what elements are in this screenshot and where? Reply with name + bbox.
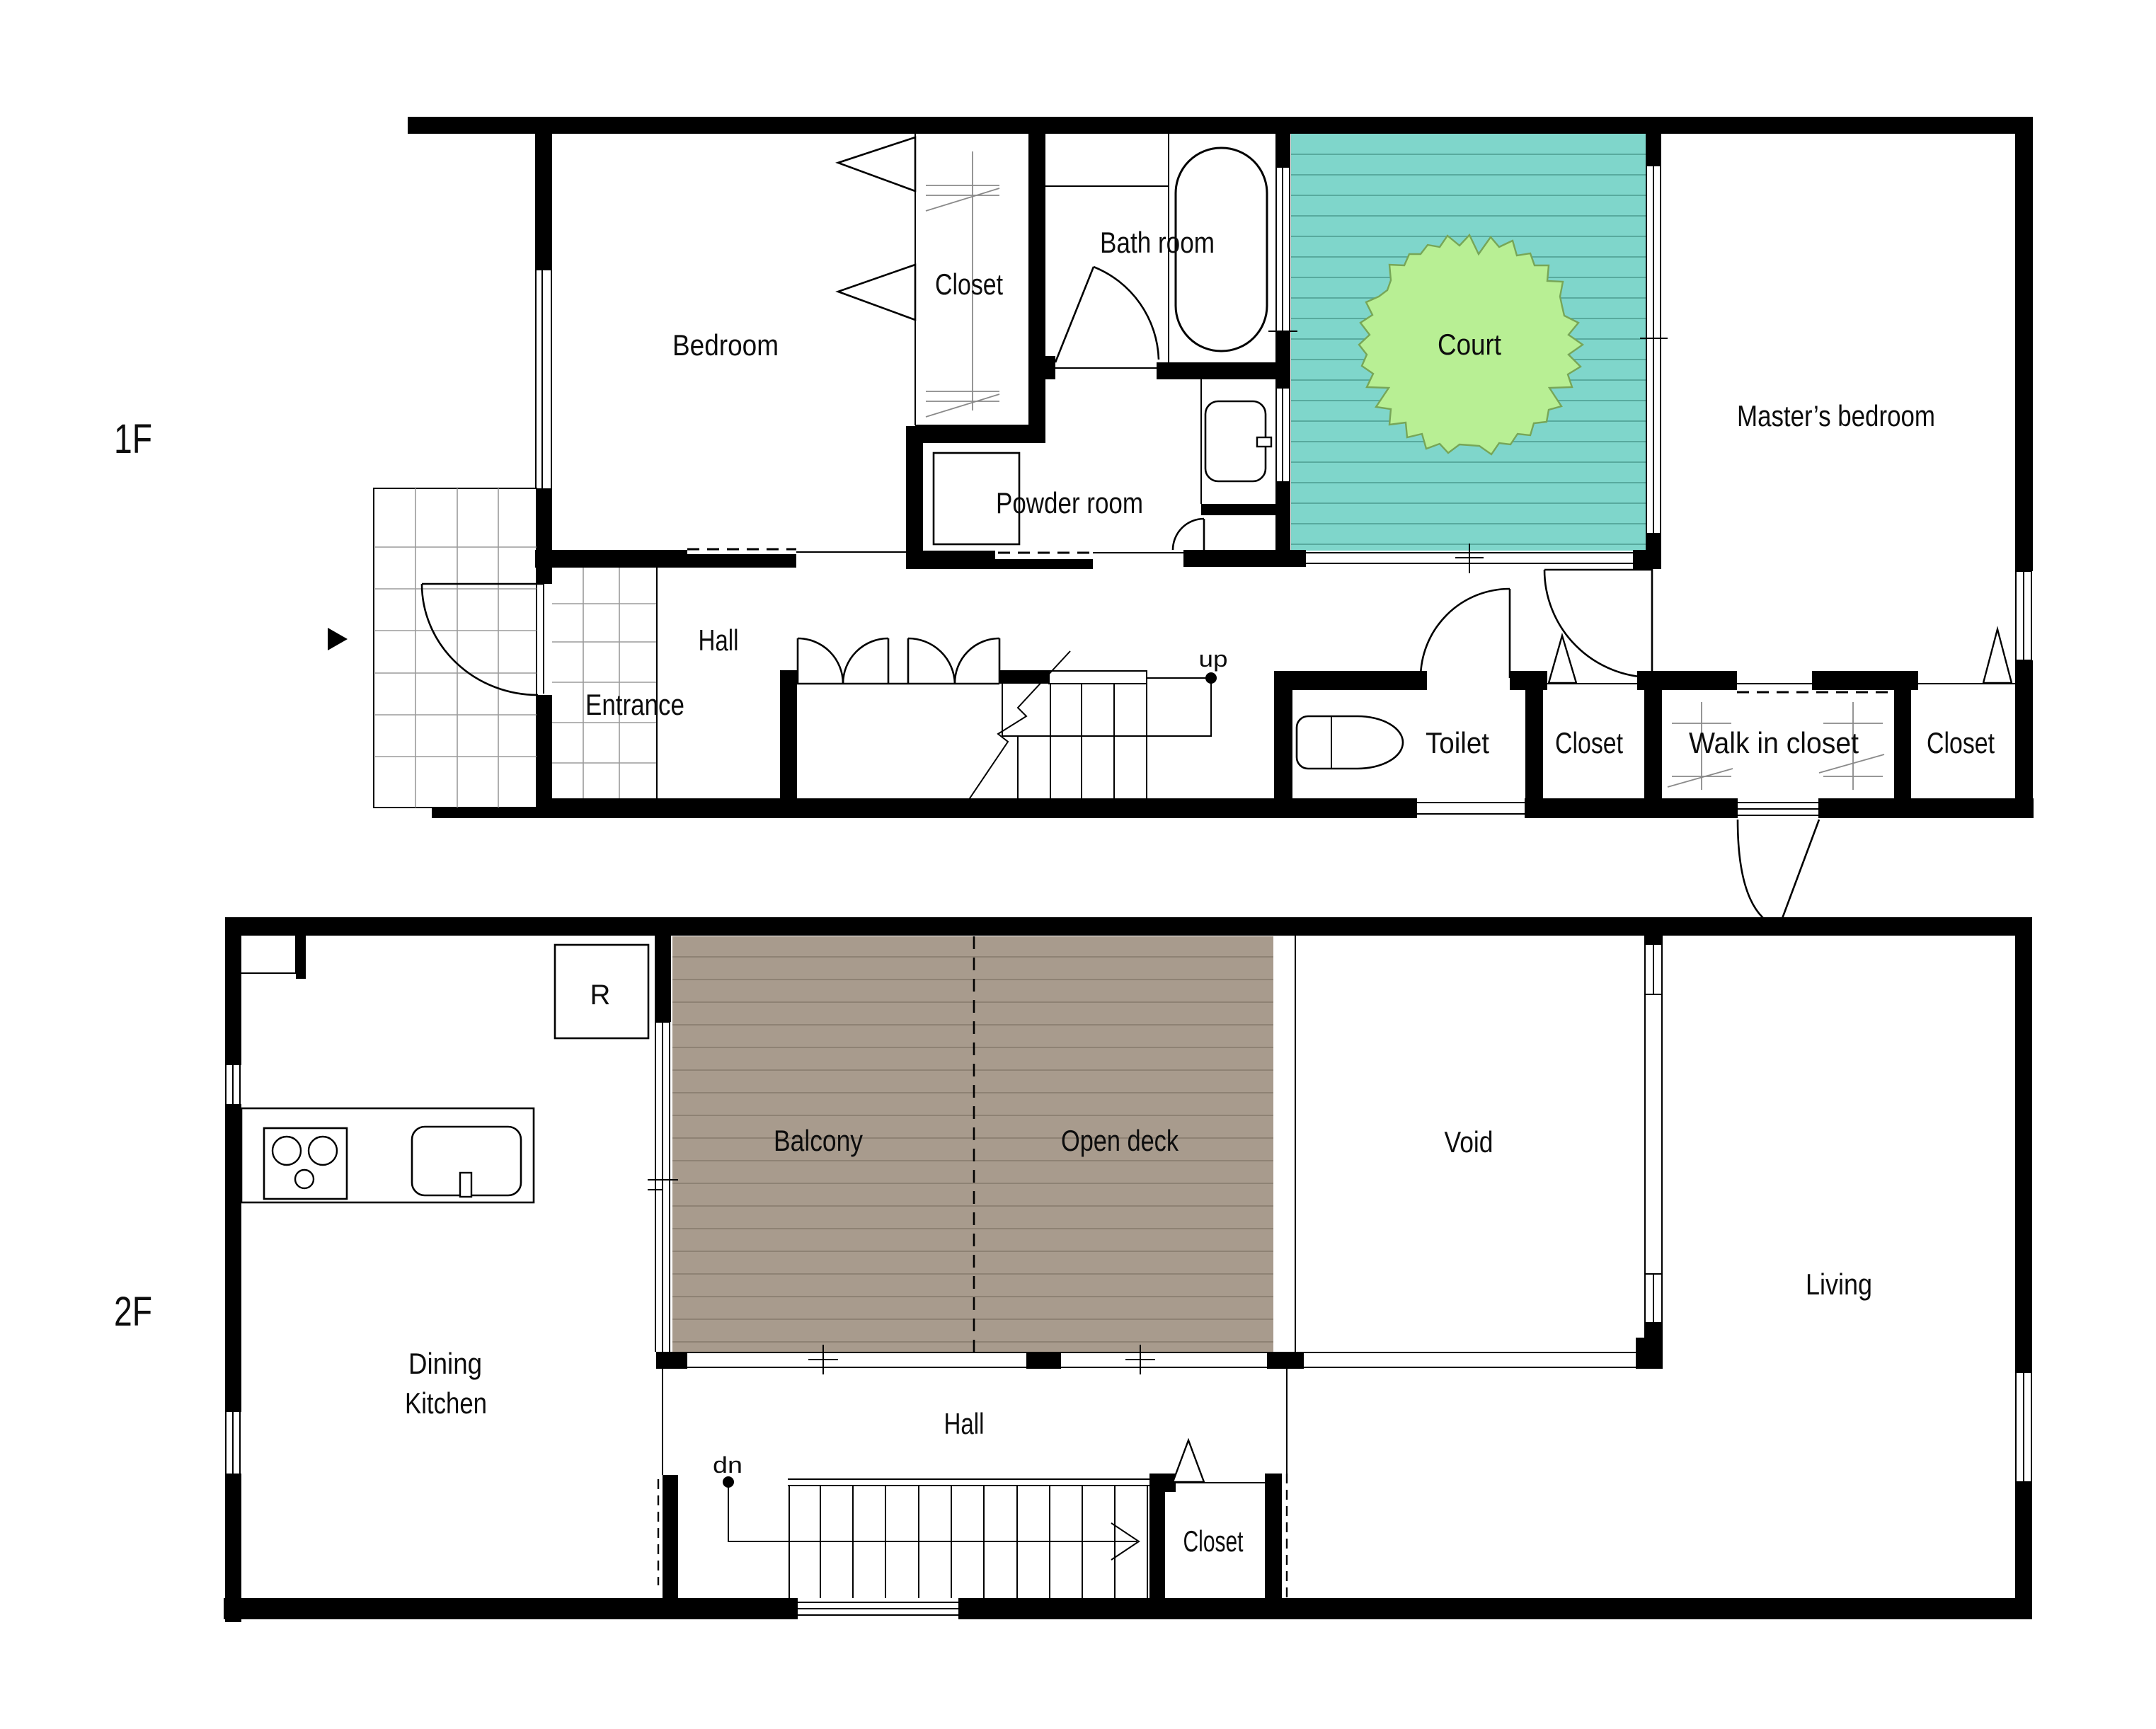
svg-text:Closet: Closet (935, 268, 1003, 301)
svg-text:2F: 2F (114, 1289, 152, 1335)
svg-text:Court: Court (1438, 328, 1501, 361)
svg-text:Hall: Hall (944, 1407, 985, 1440)
svg-text:up: up (1199, 646, 1228, 672)
svg-text:Hall: Hall (699, 624, 739, 657)
svg-text:Bedroom: Bedroom (672, 328, 779, 362)
svg-text:Closet: Closet (1555, 726, 1623, 759)
svg-text:Open deck: Open deck (1061, 1124, 1179, 1157)
svg-text:R: R (590, 980, 611, 1011)
svg-text:Closet: Closet (1183, 1524, 1244, 1558)
svg-text:Toilet: Toilet (1426, 726, 1489, 759)
svg-text:Entrance: Entrance (585, 688, 684, 721)
svg-text:dn: dn (713, 1452, 742, 1478)
svg-text:Bath room: Bath room (1100, 226, 1215, 259)
svg-text:1F: 1F (114, 416, 152, 462)
svg-text:Master’s bedroom: Master’s bedroom (1737, 399, 1935, 432)
svg-text:Dining: Dining (408, 1347, 482, 1380)
svg-text:Powder room: Powder room (996, 486, 1143, 519)
svg-text:Balcony: Balcony (774, 1124, 863, 1157)
svg-text:Kitchen: Kitchen (405, 1386, 487, 1420)
svg-text:Void: Void (1445, 1125, 1493, 1159)
svg-text:Living: Living (1806, 1268, 1872, 1301)
svg-text:Walk in closet: Walk in closet (1689, 726, 1859, 759)
svg-text:Closet: Closet (1927, 726, 1995, 759)
